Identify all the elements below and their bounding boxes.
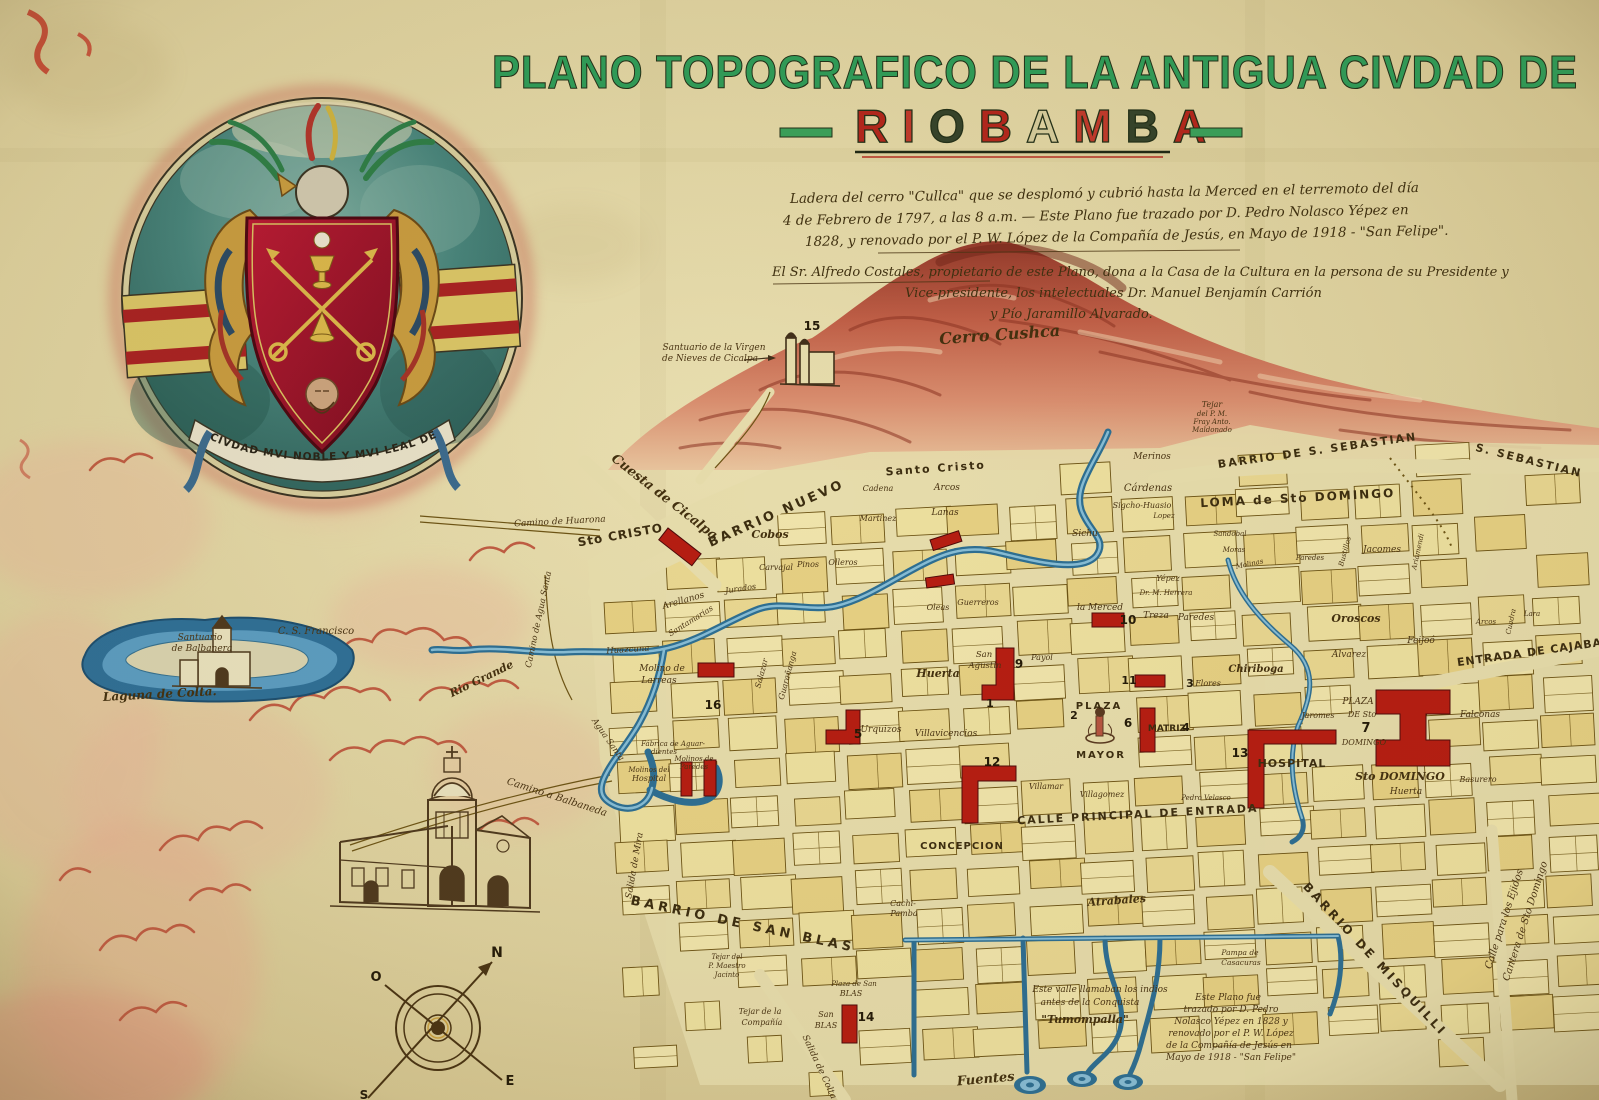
map-label: BLAS <box>839 989 863 998</box>
map-label: 6 <box>1124 716 1132 730</box>
city-block <box>1030 904 1084 935</box>
map-label: Tejar del <box>711 953 742 961</box>
city-block <box>1016 699 1064 729</box>
map-label: y Pío Jaramillo Alvarado. <box>989 307 1153 322</box>
map-label: BLAS <box>814 1021 838 1030</box>
city-block <box>1141 815 1188 850</box>
city-block <box>791 877 844 915</box>
map-label: antes de la Conquista <box>1041 998 1140 1008</box>
map-label: Lopez <box>1152 512 1174 520</box>
map-label: Santuario de la Virgen <box>662 343 765 353</box>
map-label: Compañía <box>742 1018 783 1027</box>
map-label: Plaza de San <box>830 980 877 988</box>
city-block <box>732 838 785 875</box>
map-label: Feijoó <box>1406 635 1435 646</box>
map-label: E <box>506 1074 515 1089</box>
map-label: Villamar <box>1029 782 1064 791</box>
city-block <box>976 982 1026 1014</box>
city-block <box>967 867 1020 897</box>
city-block <box>1553 915 1599 944</box>
map-label: Pedro Velasco <box>1180 794 1231 802</box>
map-label: Martinez <box>859 514 897 523</box>
map-label: 15 <box>804 319 821 333</box>
map-label: Maldonado <box>1191 426 1232 434</box>
city-block <box>1436 843 1486 876</box>
riobamba-title: RIOBAMBA <box>855 100 1220 152</box>
map-label: Cachi- <box>890 899 916 908</box>
map-label: Huerta <box>915 667 959 680</box>
map-label: Flores <box>1194 679 1221 688</box>
city-block <box>1188 690 1242 727</box>
city-block <box>1206 895 1254 930</box>
map-label: Molinos del <box>627 766 669 774</box>
city-block <box>1196 815 1246 847</box>
city-block <box>728 716 777 751</box>
map-label: Sto DOMINGO <box>1355 770 1445 783</box>
city-block <box>973 1027 1027 1057</box>
map-label: S <box>360 1088 369 1100</box>
city-block <box>1145 936 1201 966</box>
map-label: N <box>491 945 503 961</box>
city-block <box>1310 808 1366 839</box>
map-label: Yépez <box>1156 574 1180 583</box>
title-dash-right <box>1190 128 1242 137</box>
map-label: Urquizos <box>860 725 901 735</box>
city-block <box>1123 536 1171 573</box>
map-label: 1 <box>986 697 994 710</box>
map-label: Nolasco Yépez en 1828 y <box>1173 1016 1288 1027</box>
map-label: 2 <box>1070 709 1078 722</box>
map-label: 9 <box>1015 657 1023 671</box>
map-label: Paredes <box>1177 613 1215 623</box>
title-dash-left <box>780 128 832 137</box>
map-label: Dr. M. Herrera <box>1139 589 1193 597</box>
red-building-molino-larreas-16 <box>698 663 734 677</box>
city-block <box>1198 850 1245 887</box>
map-label: Basurero <box>1458 775 1496 784</box>
map-label: 4 <box>1182 721 1190 734</box>
map-label: Oroscos <box>1331 612 1380 625</box>
map-label: Molino de <box>638 664 685 674</box>
city-block <box>1537 553 1590 588</box>
city-block <box>794 797 841 826</box>
map-label: Cadena <box>863 484 894 493</box>
map-label: Este Plano fue <box>1194 993 1261 1003</box>
city-block <box>839 674 892 705</box>
map-label: Sichu <box>1072 529 1098 539</box>
map-label: Paredes <box>1295 554 1325 562</box>
map-label: Villavicencios <box>915 729 978 739</box>
map-label: Carvajal <box>759 563 793 572</box>
map-canvas: CIVDAD MVI NOBLE Y MVI LEAL DE SAN PEDRO… <box>0 0 1599 1100</box>
city-block <box>1420 558 1467 587</box>
map-label: de Nieves de Cicalpa <box>662 354 758 364</box>
map-label: Cobos <box>751 528 788 541</box>
map-label: Jaromes <box>1299 711 1334 720</box>
map-label: trazado por D. Pedro <box>1184 1005 1279 1015</box>
map-label: El Sr. Alfredo Costales, propietario de … <box>771 265 1509 280</box>
map-label: 5 <box>854 727 862 741</box>
map-label: 16 <box>705 698 722 712</box>
city-block <box>681 840 738 877</box>
map-label: Hospital <box>631 774 667 783</box>
map-label: Moras <box>1222 546 1246 554</box>
map-label: DE Sto <box>1347 710 1376 719</box>
red-building-san-blas-14 <box>842 1005 857 1043</box>
map-label: Tejar de la <box>739 1007 782 1016</box>
map-label: Huerta <box>1389 787 1422 797</box>
city-block <box>741 875 798 910</box>
city-block <box>1429 798 1476 835</box>
map-label: Pampa de <box>1220 948 1259 957</box>
map-label: Falconas <box>1459 710 1500 720</box>
map-label: Sigcho-Huasio <box>1113 501 1172 510</box>
map-label: Fray Anto. <box>1192 418 1230 426</box>
city-block <box>1017 618 1073 655</box>
city-block <box>1030 858 1086 889</box>
map-label: de la Compañía de Jesús en <box>1166 1040 1292 1051</box>
city-block <box>1557 953 1599 986</box>
city-block <box>853 833 900 864</box>
city-block <box>734 758 780 788</box>
city-block <box>1322 967 1369 998</box>
city-block <box>856 948 912 979</box>
historic-map-riobamba: CIVDAD MVI NOBLE Y MVI LEAL DE SAN PEDRO… <box>0 0 1599 1100</box>
map-label: del P. M. <box>1197 410 1227 418</box>
city-block <box>1382 922 1435 959</box>
map-label: Lara <box>1523 610 1540 618</box>
city-block <box>1432 877 1487 907</box>
map-label: Jacinto <box>713 971 740 979</box>
red-building-11 <box>1135 675 1165 687</box>
map-label: Arcos <box>933 483 960 493</box>
city-block <box>1301 569 1358 605</box>
map-label: Casacuras <box>1221 958 1261 967</box>
helmet <box>296 166 348 218</box>
map-label: Sandobal <box>1213 530 1246 538</box>
map-label: Jacomes <box>1361 545 1401 555</box>
city-block <box>1375 804 1426 839</box>
map-label: de Balbanera <box>172 644 233 654</box>
city-block <box>1092 940 1146 974</box>
map-label: renovado por el P. W. López <box>1168 1028 1294 1039</box>
map-label: C. S. Francisco <box>278 626 354 637</box>
map-label: MATRIZ <box>1148 724 1187 734</box>
map-label: 12 <box>984 755 1001 769</box>
city-block <box>1246 566 1301 604</box>
map-label: 10 <box>1120 613 1137 627</box>
city-block <box>1549 793 1599 826</box>
map-label: Mayo de 1918 - "San Felipe" <box>1165 1053 1296 1063</box>
map-label: Tejar <box>1202 400 1224 409</box>
city-block <box>1540 755 1596 785</box>
map-label: P. Maestro <box>707 962 745 970</box>
map-label: 13 <box>1232 746 1249 760</box>
city-block <box>1254 692 1302 726</box>
map-label: Paredes <box>679 763 709 771</box>
map-label: San <box>976 650 992 660</box>
map-label: Fábrica de Aguar- <box>640 740 705 748</box>
map-label: San <box>818 1010 833 1019</box>
city-block <box>1478 674 1533 711</box>
city-block <box>838 628 886 659</box>
city-block <box>1367 644 1423 679</box>
map-label: dientes <box>651 748 677 756</box>
map-label: Santuario <box>178 633 223 643</box>
city-block <box>1013 584 1069 615</box>
city-block <box>1483 720 1539 751</box>
map-label: 7 <box>1361 721 1370 736</box>
map-label: Lanas <box>930 508 959 518</box>
map-label: 11 <box>1121 674 1136 687</box>
map-label: Este valle llamaban los indios <box>1031 985 1168 995</box>
city-block <box>901 629 948 663</box>
city-block <box>1546 874 1593 908</box>
map-label: PLAZA <box>1076 701 1122 712</box>
city-block <box>910 868 958 901</box>
city-block <box>1490 754 1543 785</box>
city-block <box>844 788 895 819</box>
city-block <box>913 948 964 982</box>
map-label: Chiriboga <box>1228 664 1283 675</box>
map-label: Oleas <box>927 603 950 612</box>
map-label: Guerreros <box>957 598 998 607</box>
city-block <box>1146 856 1195 893</box>
map-label: Treza <box>1143 611 1169 621</box>
map-label: PLAZA <box>1341 697 1374 707</box>
city-block <box>622 966 659 997</box>
city-block <box>851 913 903 949</box>
map-label: Agustin <box>967 661 1001 671</box>
map-label: Merinos <box>1132 452 1171 462</box>
map-label: MAYOR <box>1076 750 1126 761</box>
map-label: Alvarez <box>1331 650 1366 660</box>
map-label: CONCEPCION <box>920 841 1004 852</box>
map-label: 3 <box>1186 677 1194 690</box>
city-block <box>967 903 1015 938</box>
city-block <box>1067 576 1117 606</box>
map-label: DOMINGO <box>1341 738 1387 747</box>
city-block <box>1540 713 1595 748</box>
map-label: HOSPITAL <box>1258 757 1327 770</box>
map-label: Payol <box>1030 653 1053 662</box>
bearded-head <box>306 378 338 410</box>
city-block <box>1027 939 1076 976</box>
map-label: Arcos <box>1475 618 1497 626</box>
city-block <box>1370 842 1425 872</box>
map-label: Vice-presidente, los intelectuales Dr. M… <box>905 286 1322 301</box>
city-block <box>604 600 656 634</box>
map-label: O <box>370 970 381 985</box>
city-block <box>923 1027 979 1060</box>
city-block <box>1134 776 1183 806</box>
map-label: Pinos <box>796 560 819 569</box>
map-title: PLANO TOPOGRAFICO DE LA ANTIGUA CIVDAD D… <box>492 46 1578 98</box>
map-label: Villagomez <box>1080 790 1125 799</box>
city-block <box>1474 515 1526 552</box>
city-block <box>909 788 965 823</box>
city-block <box>723 678 777 715</box>
city-block <box>747 1035 782 1063</box>
map-label: Pamba <box>889 909 918 918</box>
city-block <box>847 753 902 790</box>
map-label: "Tumompalla" <box>1041 1013 1129 1026</box>
map-label: Larreas <box>640 676 677 686</box>
map-label: la Merced <box>1077 603 1123 613</box>
city-block <box>914 987 969 1017</box>
city-block <box>786 751 836 784</box>
map-label: Cárdenas <box>1124 483 1172 494</box>
map-label: Olleros <box>828 558 857 567</box>
city-block <box>685 1001 721 1031</box>
map-label: 14 <box>858 1010 875 1024</box>
map-label: Molinos de <box>673 755 713 763</box>
